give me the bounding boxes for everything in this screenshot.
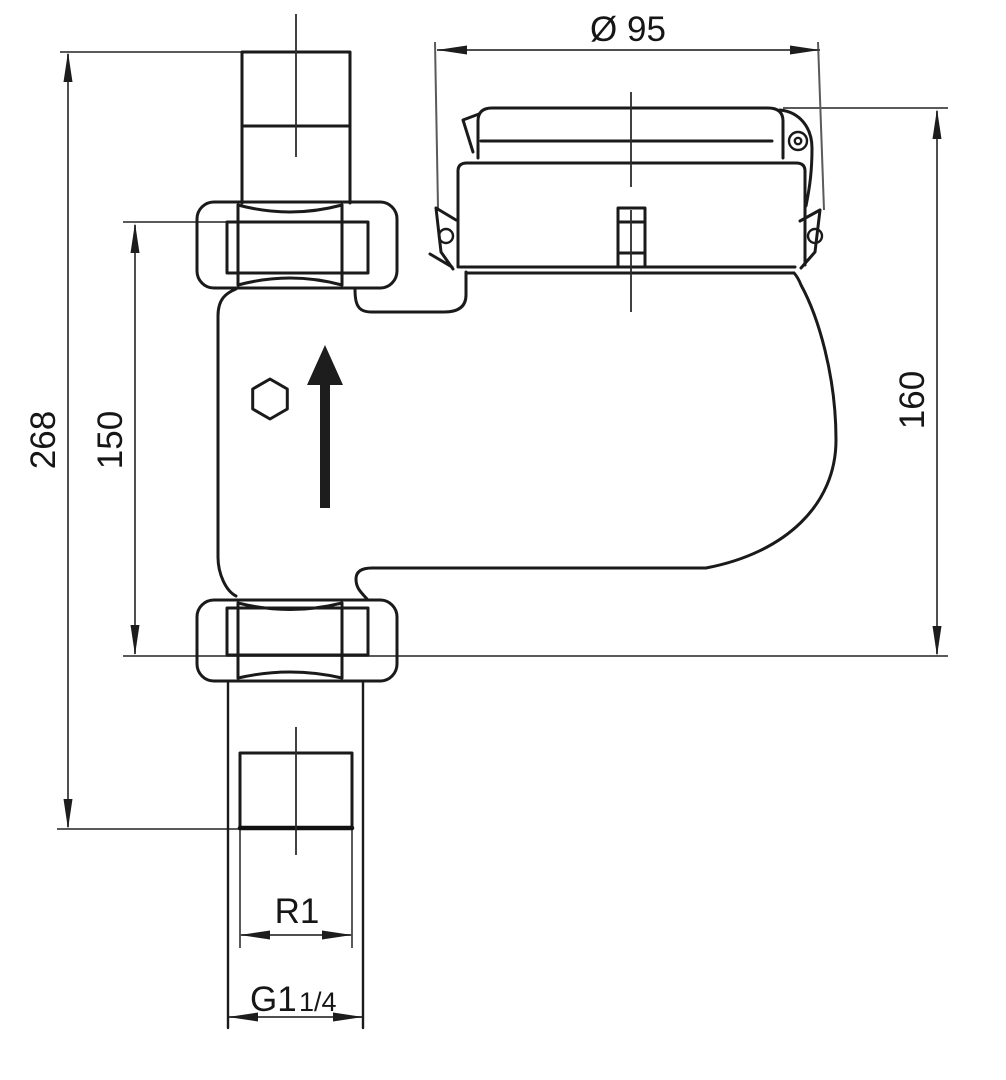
meter-body [218,267,836,599]
body-left-edge [218,289,236,596]
arrow-right-icon [322,931,352,940]
dim-tail-thread-label: R1 [275,892,320,931]
bottom-union-nut [197,600,397,681]
dim-meter-height-label: 160 [893,371,932,429]
lid-hinge-arm [780,110,812,206]
body-symbols [253,345,343,508]
screw-left-icon [439,229,453,243]
arrow-down-icon [64,799,73,829]
body-bowl-curve [356,273,836,599]
hex-plug-icon [253,379,288,419]
nut-shoulder [227,608,368,655]
dim-union-thread-label: G1 [250,980,297,1019]
bottom-tailpiece [228,681,363,1028]
hinge-pivot-center-icon [795,138,801,144]
dim-union-thread-fraction-label: 1/4 [299,987,337,1017]
technical-drawing-page: Ø 95 268 150 160 R1 G1 1/4 [0,0,1006,1080]
top-union-nut [197,202,397,288]
arrow-right-icon [333,1013,363,1022]
arrow-right-icon [790,46,820,55]
arrow-down-icon [131,625,140,655]
arrow-up-icon [933,109,942,139]
arrow-down-icon [933,626,942,656]
arrow-left-icon [240,931,270,940]
dim-diameter-label: Ø 95 [590,10,666,49]
hinge-pivot-icon [789,132,807,150]
ext-diameter-left [435,42,438,208]
body-inlet-neck [355,272,466,312]
nut-chamfer-arc [238,672,342,678]
dim-overall-label: 268 [24,411,63,469]
nut-chamfer-arc [238,205,342,212]
meter-pot [430,92,822,312]
top-pipe-stub [242,14,350,203]
arrow-up-icon [131,223,140,253]
object-layer [197,14,836,1028]
ext-diameter-right [818,42,824,210]
nut-shoulder [227,222,368,273]
dimension-drawing: Ø 95 268 150 160 R1 G1 1/4 [0,0,1006,1080]
arrow-up-icon [64,52,73,82]
nut-chamfer-arc [238,278,342,285]
flow-arrow-icon [307,345,343,508]
arrow-left-icon [437,46,467,55]
dim-spacing-label: 150 [91,411,130,469]
